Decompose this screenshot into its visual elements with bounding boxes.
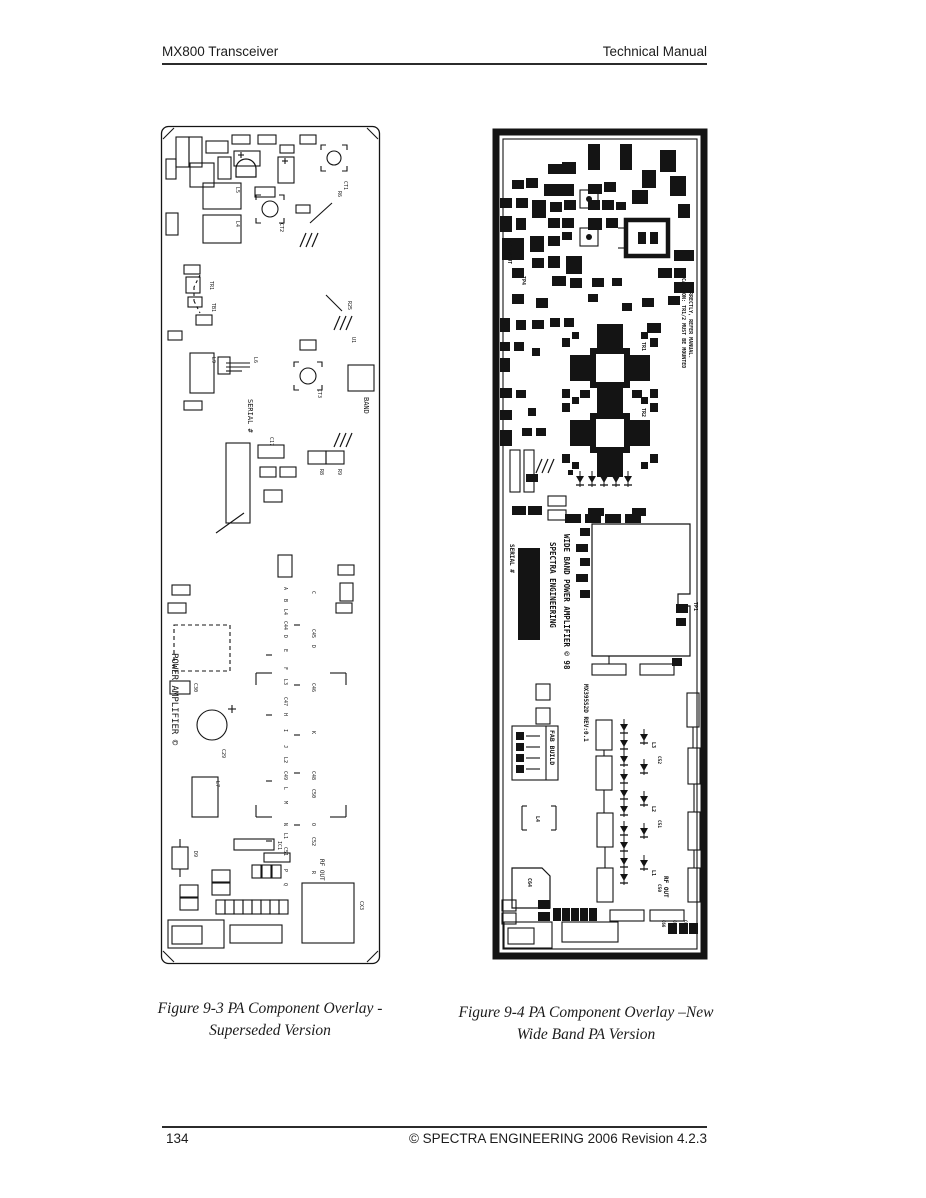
svg-text:SERIAL #: SERIAL # bbox=[508, 544, 515, 573]
pcb-overlay-wideband-figure: SERIAL #SPECTRA ENGINEERINGWIDE BAND POW… bbox=[492, 128, 708, 960]
figure-9-3-caption: Figure 9-3 PA Component Overlay - Supers… bbox=[150, 998, 390, 1041]
svg-text:MX395S2D REV:0.1: MX395S2D REV:0.1 bbox=[582, 684, 589, 742]
svg-text:P: P bbox=[282, 869, 288, 872]
figure-9-4-caption: Figure 9-4 PA Component Overlay –New Wid… bbox=[446, 1002, 726, 1045]
svg-text:C50: C50 bbox=[656, 884, 662, 892]
svg-text:C64: C64 bbox=[526, 878, 532, 887]
svg-text:O: O bbox=[310, 823, 316, 826]
caption-line: Wide Band PA Version bbox=[446, 1024, 726, 1046]
svg-text:C52: C52 bbox=[310, 837, 316, 846]
svg-text:L2: L2 bbox=[282, 757, 288, 763]
svg-text:L9: L9 bbox=[210, 357, 216, 363]
svg-text:TR2: TR2 bbox=[640, 408, 646, 417]
svg-text:TP4: TP4 bbox=[520, 276, 526, 285]
svg-text:C68: C68 bbox=[683, 920, 688, 928]
svg-text:TP1: TP1 bbox=[692, 602, 698, 611]
svg-text:C50: C50 bbox=[310, 789, 316, 798]
svg-text:TR1: TR1 bbox=[208, 281, 214, 290]
svg-text:C51: C51 bbox=[656, 820, 662, 828]
svg-text:C49: C49 bbox=[282, 771, 288, 780]
svg-text:L5: L5 bbox=[234, 187, 240, 193]
svg-text:C44: C44 bbox=[282, 621, 288, 630]
svg-text:C51: C51 bbox=[282, 847, 288, 856]
svg-text:L1: L1 bbox=[650, 870, 656, 876]
svg-text:CX3: CX3 bbox=[358, 901, 364, 910]
svg-text:L6: L6 bbox=[252, 357, 258, 363]
svg-text:C66: C66 bbox=[661, 920, 666, 928]
svg-text:R6: R6 bbox=[336, 191, 342, 197]
svg-text:J: J bbox=[282, 745, 288, 748]
svg-text:RF OUT: RF OUT bbox=[662, 876, 669, 898]
svg-text:CT3: CT3 bbox=[316, 389, 322, 398]
svg-text:R: R bbox=[310, 871, 316, 875]
svg-text:E: E bbox=[282, 649, 288, 652]
svg-text:R8: R8 bbox=[318, 469, 324, 475]
svg-text:WIDE BAND POWER AMPLIFIER © 98: WIDE BAND POWER AMPLIFIER © 98 bbox=[562, 534, 571, 670]
svg-text:C30: C30 bbox=[192, 683, 198, 692]
svg-text:RF INPUT: RF INPUT bbox=[506, 240, 512, 264]
svg-text:SPECTRA ENGINEERING: SPECTRA ENGINEERING bbox=[548, 542, 557, 628]
svg-text:R25: R25 bbox=[346, 301, 352, 310]
svg-text:L4: L4 bbox=[234, 221, 240, 227]
svg-text:L2: L2 bbox=[650, 806, 656, 812]
svg-text:C17: C17 bbox=[268, 437, 274, 446]
svg-text:C45: C45 bbox=[310, 629, 316, 638]
svg-text:B: B bbox=[282, 599, 288, 602]
svg-text:I: I bbox=[282, 729, 288, 732]
svg-text:CT1: CT1 bbox=[342, 181, 348, 190]
svg-text:TB1: TB1 bbox=[210, 303, 216, 312]
svg-text:C52: C52 bbox=[656, 756, 662, 764]
caption-line: Superseded Version bbox=[150, 1020, 390, 1042]
svg-text:FAB BUILD: FAB BUILD bbox=[548, 730, 556, 765]
svg-text:L3: L3 bbox=[282, 679, 288, 685]
svg-text:C47: C47 bbox=[282, 697, 288, 706]
svg-text:RF OUT: RF OUT bbox=[318, 859, 325, 881]
svg-text:POWER AMPLIFIER ©: POWER AMPLIFIER © bbox=[169, 653, 179, 746]
header-left-title: MX800 Transceiver bbox=[162, 44, 278, 59]
svg-text:L4: L4 bbox=[282, 609, 288, 615]
header-right-title: Technical Manual bbox=[603, 44, 707, 59]
svg-text:CORRECTLY, REFER MANUAL.: CORRECTLY, REFER MANUAL. bbox=[687, 286, 693, 358]
svg-text:D: D bbox=[282, 635, 288, 638]
svg-text:H: H bbox=[282, 713, 288, 716]
svg-text:C: C bbox=[310, 591, 316, 594]
svg-text:D9: D9 bbox=[192, 851, 198, 857]
svg-text:C29: C29 bbox=[220, 749, 226, 758]
page-footer: 134 © SPECTRA ENGINEERING 2006 Revision … bbox=[162, 1126, 707, 1146]
svg-text:R9: R9 bbox=[336, 469, 342, 475]
svg-text:TR1: TR1 bbox=[640, 342, 646, 351]
svg-text:L: L bbox=[282, 787, 288, 790]
svg-text:U1: U1 bbox=[350, 337, 356, 343]
svg-text:Q: Q bbox=[282, 883, 288, 886]
svg-text:IC1: IC1 bbox=[276, 841, 282, 850]
svg-text:M: M bbox=[282, 801, 288, 804]
manual-page: MX800 Transceiver Technical Manual POWER… bbox=[0, 0, 926, 1198]
svg-text:N: N bbox=[282, 823, 288, 826]
caption-line: Figure 9-4 PA Component Overlay –New bbox=[446, 1002, 726, 1024]
copyright-text: © SPECTRA ENGINEERING 2006 Revision 4.2.… bbox=[409, 1131, 707, 1146]
svg-text:C67: C67 bbox=[672, 920, 677, 928]
svg-text:L3: L3 bbox=[650, 742, 656, 748]
page-header: MX800 Transceiver Technical Manual bbox=[162, 44, 707, 65]
svg-text:BAND: BAND bbox=[362, 397, 370, 414]
svg-text:L1: L1 bbox=[282, 833, 288, 839]
svg-text:L4: L4 bbox=[534, 816, 540, 822]
page-number: 134 bbox=[162, 1131, 189, 1146]
svg-text:CAUTION: TR1/2 MUST BE MOUNTED: CAUTION: TR1/2 MUST BE MOUNTED bbox=[680, 278, 686, 368]
svg-text:A: A bbox=[282, 587, 288, 590]
svg-text:L7: L7 bbox=[214, 781, 220, 787]
svg-text:CT2: CT2 bbox=[278, 223, 284, 232]
caption-line: Figure 9-3 PA Component Overlay - bbox=[150, 998, 390, 1020]
svg-text:D: D bbox=[310, 645, 316, 648]
svg-text:C46: C46 bbox=[310, 683, 316, 692]
svg-text:C48: C48 bbox=[310, 771, 316, 780]
svg-text:SERIAL #: SERIAL # bbox=[246, 399, 254, 434]
svg-text:K: K bbox=[310, 731, 316, 734]
pcb-overlay-superseded-figure: POWER AMPLIFIER ©SERIAL #BANDRF OUTCT1CT… bbox=[160, 125, 381, 965]
svg-text:F: F bbox=[282, 667, 288, 670]
